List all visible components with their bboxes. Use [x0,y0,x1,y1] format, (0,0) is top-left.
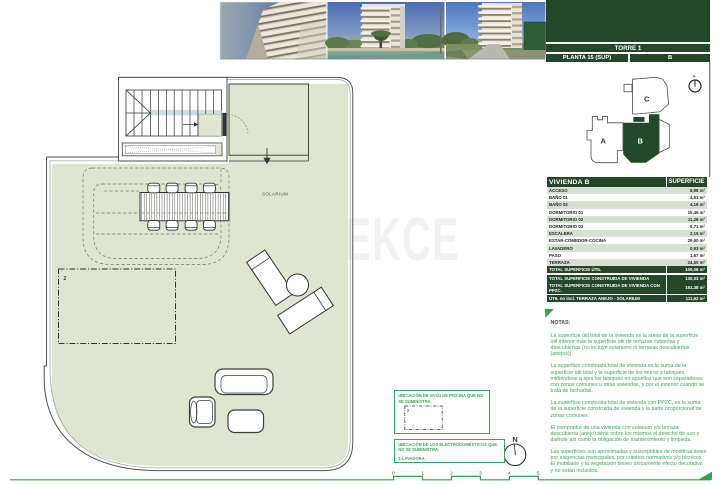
svg-text:N: N [512,435,517,444]
svg-text:2: 2 [64,276,67,282]
svg-text:4: 4 [508,471,511,476]
svg-text:2: 2 [450,471,453,476]
svg-text:1: 1 [421,471,424,476]
svg-text:C: C [644,95,650,104]
svg-text:A: A [601,137,607,146]
svg-text:3: 3 [479,471,482,476]
svg-text:N: N [693,75,696,79]
svg-text:B: B [638,137,644,146]
svg-text:0: 0 [392,471,395,476]
svg-text:SOLARIUM: SOLARIUM [262,192,288,197]
svg-text:5: 5 [537,471,540,476]
